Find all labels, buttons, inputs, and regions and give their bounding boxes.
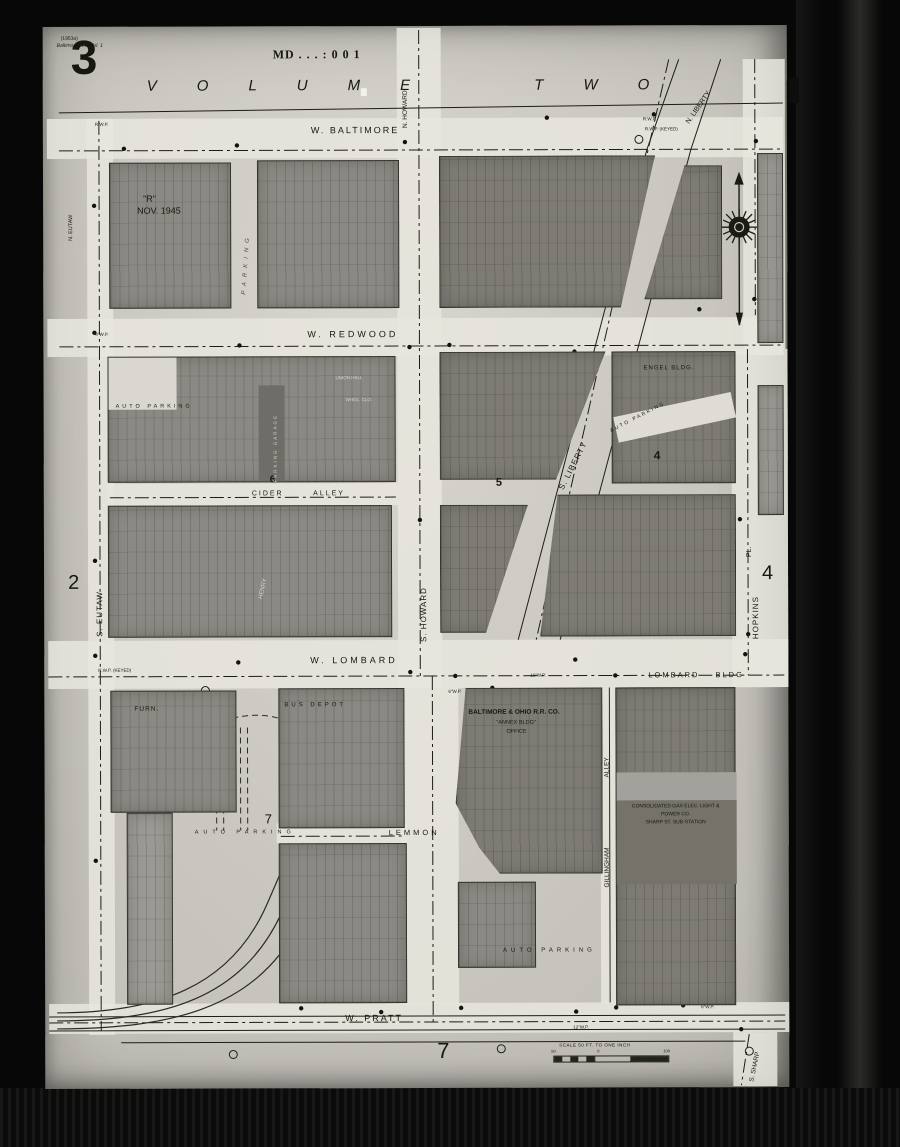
scale-label: SCALE 50 FT. TO ONE INCH bbox=[559, 1043, 630, 1048]
pipe-note: R.W.P. bbox=[643, 117, 656, 122]
street-label-s-eutaw: S. EUTAW bbox=[96, 591, 104, 637]
building-label-furn: FURN. bbox=[134, 707, 159, 714]
book-edge-streak bbox=[838, 0, 882, 1105]
city-block bbox=[109, 162, 231, 308]
street-label-w-lombard: W. LOMBARD bbox=[310, 656, 398, 665]
auto-parking-lot bbox=[108, 358, 176, 410]
pipe-note: 6"W.P. bbox=[448, 690, 461, 695]
parking-garage-building bbox=[259, 385, 285, 481]
block-number-5: 5 bbox=[496, 478, 502, 489]
street-label-w-redwood: W. REDWOOD bbox=[307, 330, 398, 339]
building-label-lombard-bldg: LOMBARD BLDG bbox=[648, 671, 744, 679]
edition-date: NOV. 1945 bbox=[137, 207, 181, 216]
street-label-gillingham-alley: ALLEY bbox=[605, 757, 612, 777]
city-block bbox=[279, 843, 407, 1003]
street-label-n-howard: N. HOWARD bbox=[403, 90, 410, 128]
scale-tick-right: 100 bbox=[663, 1049, 670, 1053]
building-label-consolidated-1: CONSOLIDATED GAS ELEC. LIGHT & bbox=[617, 804, 735, 809]
building-label-bo-office: OFFICE bbox=[506, 730, 526, 736]
building-label-engel: ENGEL BLDG. bbox=[643, 365, 694, 371]
scan-artifact bbox=[789, 78, 799, 103]
street-label-w-pratt: W. PRATT bbox=[345, 1014, 403, 1023]
city-block bbox=[257, 160, 399, 308]
city-block bbox=[757, 153, 783, 343]
street-label-cider-alley: CIDER ALLEY bbox=[252, 490, 345, 497]
bus-depot-block bbox=[278, 688, 404, 828]
pipe-note: R.W.P. bbox=[95, 123, 108, 128]
city-block bbox=[458, 882, 536, 968]
pipe-note: 6"W.P. bbox=[701, 1005, 714, 1010]
scale-bar bbox=[553, 1055, 669, 1062]
area-label-auto-parking: AUTO PARKING bbox=[503, 948, 596, 954]
sheet-number: 3 bbox=[71, 35, 96, 83]
adjacent-sheet-7: 7 bbox=[437, 1040, 449, 1062]
street-label-n-eutaw: N. EUTAW bbox=[69, 215, 75, 241]
street-label-pl: PL. bbox=[746, 547, 753, 558]
building-label-bo-rr: BALTIMORE & OHIO R.R. CO. bbox=[468, 710, 559, 717]
building-label-union-hall: UNION HALL bbox=[336, 376, 363, 381]
building-label-consolidated-2: POWER CO. bbox=[617, 812, 735, 817]
md-stamp: MD . . . : 0 0 1 bbox=[273, 48, 361, 60]
furniture-warehouse-block bbox=[110, 690, 236, 812]
warehouse-strip bbox=[127, 813, 174, 1005]
street-label-lemmon: LEMMON bbox=[389, 829, 440, 837]
building-label-consolidated-3: SHARP ST. SUB-STATION bbox=[617, 820, 735, 825]
block-number-7: 7 bbox=[265, 812, 272, 825]
adjacent-sheet-2: 2 bbox=[68, 573, 79, 593]
building-label-whol-clo: WHOL. CLO. bbox=[346, 398, 373, 403]
block-number-4: 4 bbox=[654, 449, 661, 461]
scan-artifact bbox=[361, 88, 367, 96]
building-label-parking-garage: PARKING GARAGE bbox=[274, 414, 279, 482]
scanned-map-photo: (1953a) Baltimore, Md. Vol. 1 3 MD . . .… bbox=[0, 0, 900, 1147]
compass-rose-icon bbox=[721, 173, 757, 325]
pipe-note: R.W.P. (KEYED) bbox=[645, 127, 678, 132]
edition-label: "R" bbox=[143, 195, 156, 204]
pipe-note: R.W.P. (KEYED) bbox=[98, 669, 131, 674]
pipe-note: 8"W.P. bbox=[95, 333, 108, 338]
court-gap bbox=[617, 772, 737, 800]
city-block bbox=[540, 494, 736, 637]
pipe-note: 16"W.P. bbox=[530, 674, 546, 679]
area-label-auto-parking: AUTO PARKING bbox=[195, 830, 296, 836]
volume-title: VOLUME TWO bbox=[147, 77, 690, 93]
area-label-auto-parking: AUTO PARKING bbox=[116, 405, 193, 411]
adjacent-sheet-4: 4 bbox=[762, 563, 773, 583]
lombard-bldg-block bbox=[615, 687, 736, 1005]
city-block bbox=[758, 385, 784, 515]
city-block bbox=[108, 505, 392, 638]
street-label-w-baltimore: W. BALTIMORE bbox=[311, 126, 399, 135]
sanborn-map-sheet: (1953a) Baltimore, Md. Vol. 1 3 MD . . .… bbox=[43, 25, 790, 1089]
street-label-hopkins: HOPKINS bbox=[752, 596, 760, 639]
bottom-cloth-band bbox=[0, 1088, 900, 1147]
building-label-bus-depot: BUS DEPOT bbox=[284, 702, 346, 708]
street-label-s-howard: S. HOWARD bbox=[420, 587, 428, 642]
scale-tick-left: 50 bbox=[551, 1050, 555, 1054]
scale-tick-mid: 0 bbox=[597, 1050, 599, 1054]
building-label-bo-annex: "ANNEX BLDG" bbox=[496, 721, 535, 727]
street-label-gillingham: GILLINGHAM bbox=[605, 847, 612, 887]
pipe-note: 12"W.P. bbox=[573, 1026, 589, 1031]
page-edge-shadow bbox=[796, 0, 822, 1090]
city-block bbox=[439, 155, 655, 308]
